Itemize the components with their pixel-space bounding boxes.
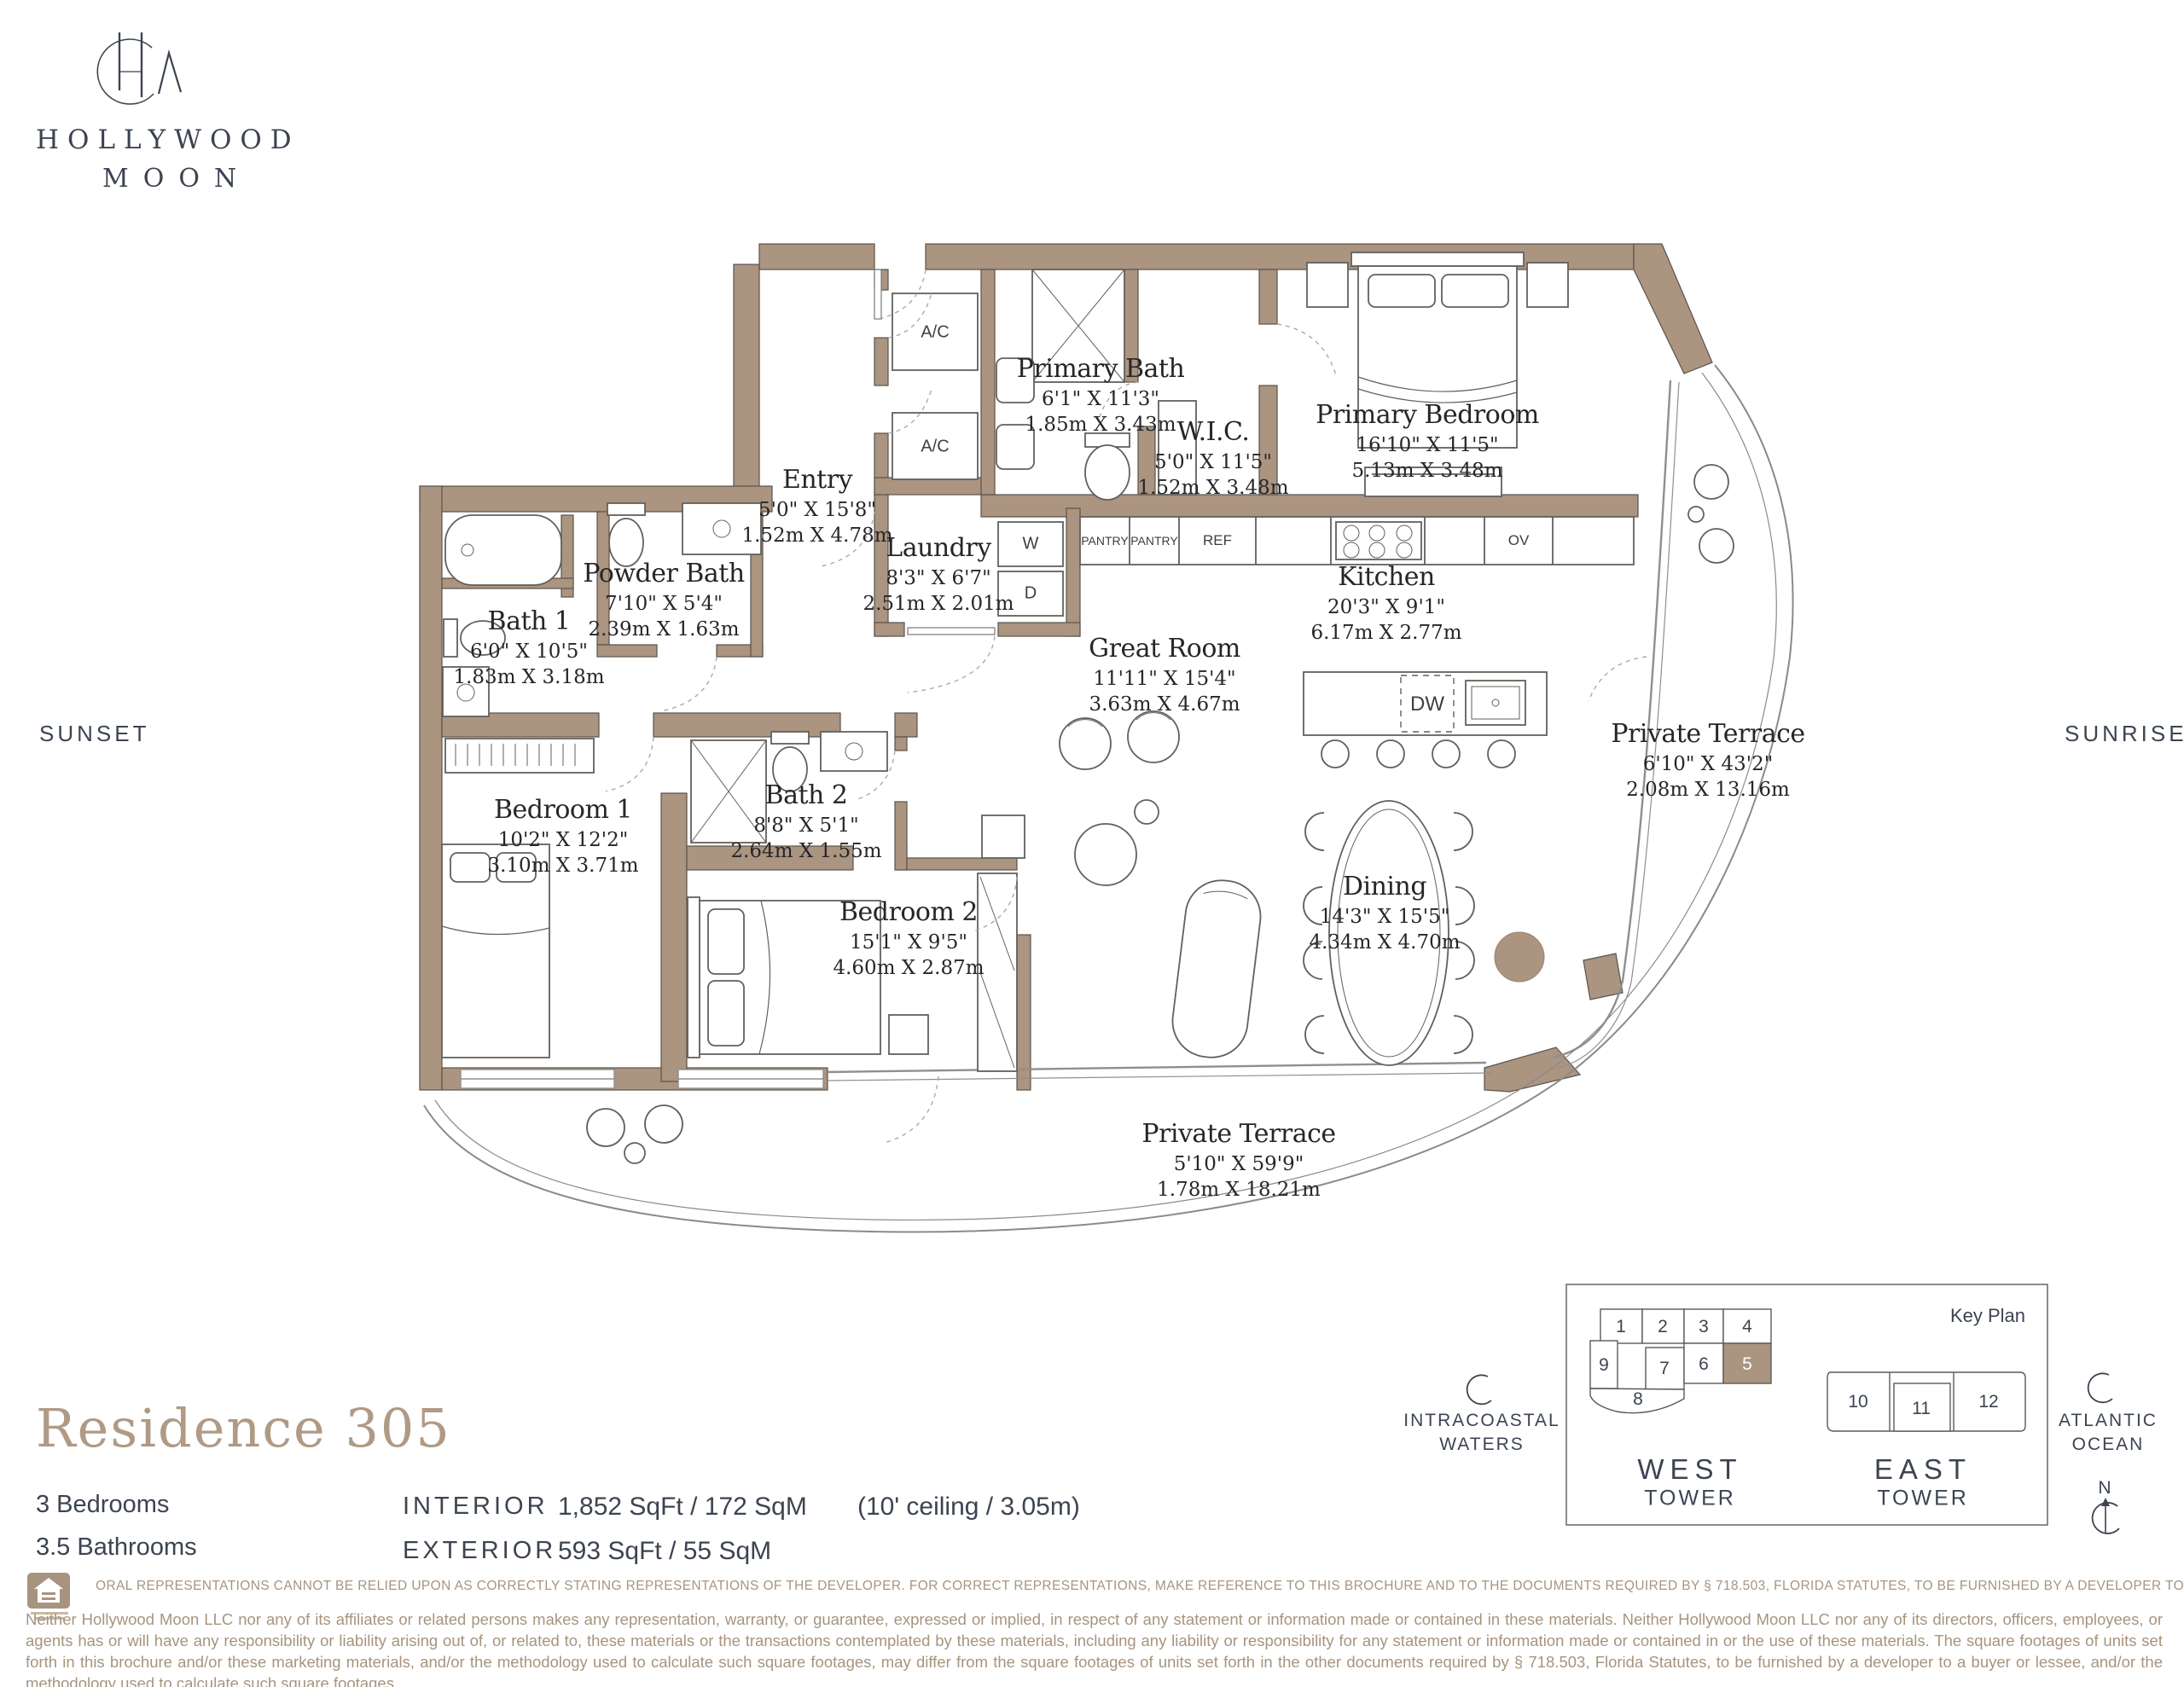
sunset-label: SUNSET <box>39 721 149 747</box>
room-label-bedroom2: Bedroom 2 15'1" X 9'5" 4.60m X 2.87m <box>833 900 984 982</box>
washer-label: W <box>1023 535 1039 554</box>
room-label-bath2: Bath 2 8'8" X 5'1" 2.64m X 1.55m <box>730 783 881 865</box>
room-label-bath1: Bath 1 6'0" X 10'5" 1.83m X 3.18m <box>453 609 604 691</box>
keyplan-unit-4: 4 <box>1742 1317 1752 1337</box>
exterior-value: 593 SqFt / 55 SqM <box>558 1537 771 1566</box>
keyplan-unit-3: 3 <box>1699 1317 1709 1337</box>
intracoastal-moon-icon <box>1467 1375 1491 1404</box>
atlantic-moon-icon <box>2088 1373 2112 1402</box>
room-label-private-terrace-east: Private Terrace 6'10" X 43'2" 2.08m X 13… <box>1611 722 1804 803</box>
room-label-powder-bath: Powder Bath 7'10" X 5'4" 2.39m X 1.63m <box>583 561 744 643</box>
keyplan-unit-8: 8 <box>1633 1389 1643 1410</box>
legal-disclaimer: Neither Hollywood Moon LLC nor any of it… <box>26 1609 2163 1687</box>
brand-name-line1: HOLLYWOOD <box>36 125 300 155</box>
brand-monogram-icon <box>97 32 181 104</box>
intracoastal-label-line2: WATERS <box>1439 1435 1525 1455</box>
keyplan-unit-2: 2 <box>1658 1317 1668 1337</box>
exterior-label: EXTERIOR <box>403 1537 556 1565</box>
bedrooms-count: 3 Bedrooms <box>36 1491 169 1519</box>
keyplan-unit-7: 7 <box>1659 1359 1670 1379</box>
keyplan-unit-1: 1 <box>1616 1317 1626 1337</box>
ac-closet-2-label: A/C <box>921 438 949 457</box>
fridge-label: REF <box>1203 532 1232 549</box>
bathrooms-count: 3.5 Bathrooms <box>36 1533 197 1562</box>
room-label-great-room: Great Room 11'11" X 15'4" 3.63m X 4.67m <box>1089 636 1240 718</box>
keyplan-unit-9: 9 <box>1599 1355 1609 1376</box>
room-label-laundry: Laundry 8'3" X 6'7" 2.51m X 2.01m <box>863 536 1014 617</box>
north-label: N <box>2098 1478 2112 1499</box>
sunrise-label: SUNRISE <box>2065 721 2184 747</box>
ac-closet-1-label: A/C <box>921 323 949 343</box>
east-tower-label: EAST <box>1874 1453 1972 1486</box>
column <box>1495 932 1544 982</box>
oven-label: OV <box>1508 532 1530 549</box>
room-label-dining: Dining 14'3" X 15'5" 4.34m X 4.70m <box>1309 874 1460 956</box>
west-tower-label: WEST <box>1637 1453 1742 1486</box>
keyplan-unit-12: 12 <box>1978 1392 1998 1412</box>
keyplan-unit-5-highlighted: 5 <box>1742 1354 1752 1375</box>
brochure-page: HOLLYWOOD MOON SUNSET SUNRISE Primary Ba… <box>0 0 2184 1687</box>
room-label-kitchen: Kitchen 20'3" X 9'1" 6.17m X 2.77m <box>1310 565 1461 646</box>
atlantic-label-line2: OCEAN <box>2072 1435 2145 1455</box>
dishwasher-label: DW <box>1410 693 1444 716</box>
north-compass-icon <box>2093 1498 2119 1533</box>
keyplan-unit-10: 10 <box>1848 1392 1867 1412</box>
room-label-bedroom1: Bedroom 1 10'2" X 12'2" 3.10m X 3.71m <box>487 797 638 879</box>
interior-value: 1,852 SqFt / 172 SqM <box>558 1493 807 1522</box>
dryer-label: D <box>1025 584 1037 604</box>
pantry2-label: PANTRY <box>1130 534 1178 548</box>
keyplan-unit-11: 11 <box>1912 1399 1931 1419</box>
intracoastal-label-line1: INTRACOASTAL <box>1403 1411 1560 1431</box>
keyplan-unit-6: 6 <box>1699 1354 1709 1375</box>
pantry1-label: PANTRY <box>1081 534 1129 548</box>
west-tower-sublabel: TOWER <box>1644 1487 1736 1511</box>
room-label-wic: W.I.C. 5'0" X 11'5" 1.52m X 3.48m <box>1137 420 1288 501</box>
brand-name-line2: MOON <box>102 164 251 194</box>
atlantic-label-line1: ATLANTIC <box>2059 1411 2158 1431</box>
room-label-primary-bedroom: Primary Bedroom 16'10" X 11'5" 5.13m X 3… <box>1316 403 1539 484</box>
residence-title: Residence 305 <box>36 1397 451 1459</box>
interior-label: INTERIOR <box>403 1493 549 1521</box>
legal-notice: ORAL REPRESENTATIONS CANNOT BE RELIED UP… <box>96 1579 2169 1594</box>
ceiling-note: (10' ceiling / 3.05m) <box>857 1493 1080 1522</box>
east-tower-sublabel: TOWER <box>1877 1487 1969 1511</box>
room-label-private-terrace-south: Private Terrace 5'10" X 59'9" 1.78m X 18… <box>1141 1122 1335 1203</box>
keyplan-title: Key Plan <box>1950 1305 2025 1327</box>
